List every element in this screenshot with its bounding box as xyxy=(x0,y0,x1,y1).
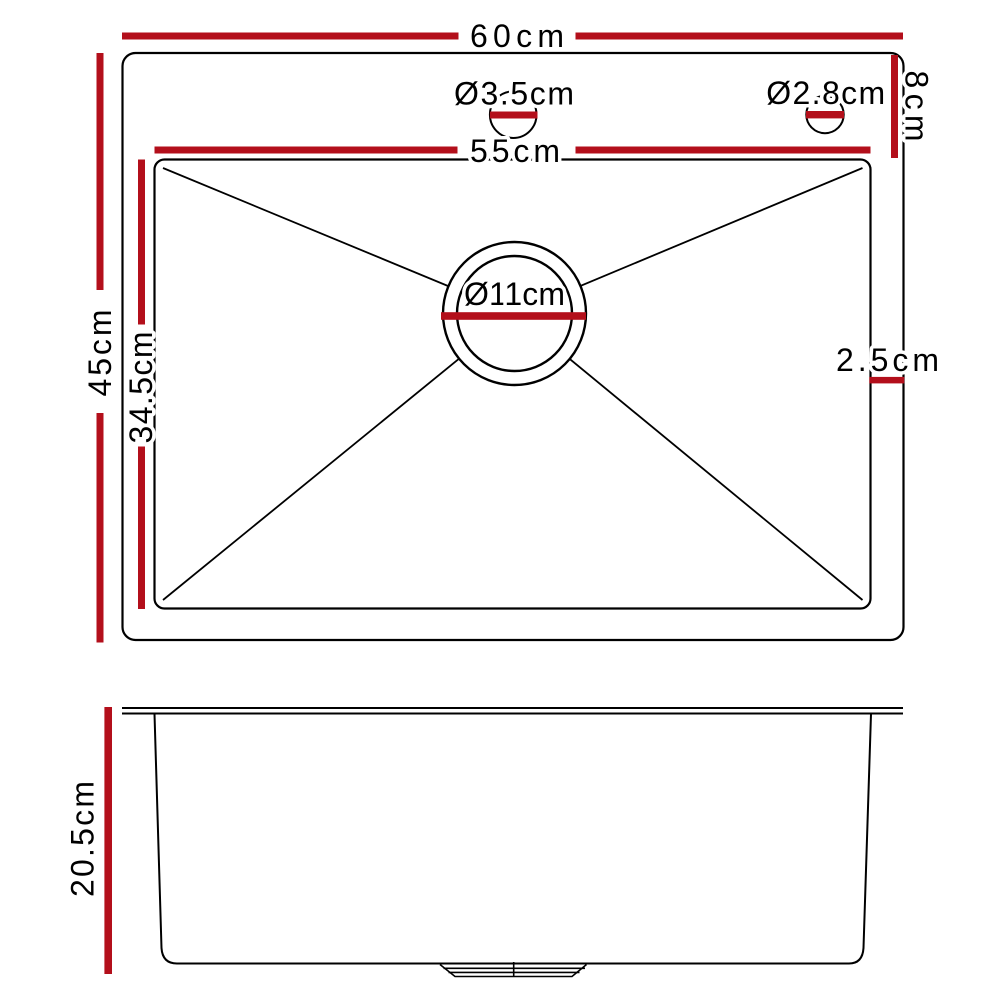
svg-text:60cm: 60cm xyxy=(470,18,564,54)
svg-text:Ø2.8cm: Ø2.8cm xyxy=(766,75,885,111)
svg-text:Ø11cm: Ø11cm xyxy=(464,276,565,312)
svg-text:2.5cm: 2.5cm xyxy=(836,342,939,378)
svg-text:55cm: 55cm xyxy=(470,133,560,169)
svg-text:34.5cm: 34.5cm xyxy=(123,332,159,444)
svg-text:8cm: 8cm xyxy=(899,71,935,142)
svg-text:45cm: 45cm xyxy=(82,310,118,397)
svg-text:20.5cm: 20.5cm xyxy=(65,781,101,897)
svg-text:Ø3.5cm: Ø3.5cm xyxy=(454,76,574,112)
